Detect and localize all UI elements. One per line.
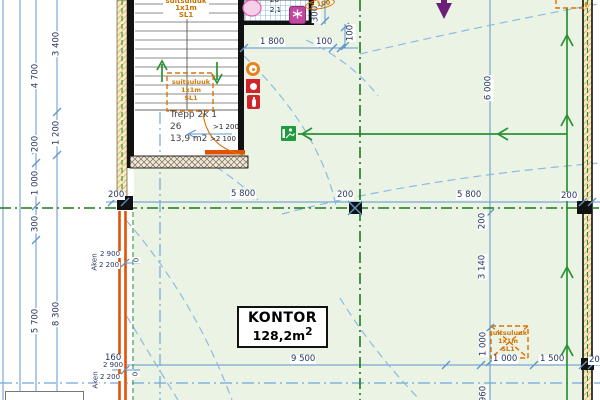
dim-left-300: 300 — [32, 215, 41, 233]
dim-mid-5800-left: 5 800 — [230, 190, 256, 199]
window-bottom-width: 2 900 — [102, 362, 124, 369]
door-clear-width: >1 200 — [212, 124, 240, 131]
wc-symbol-glyph — [290, 7, 305, 22]
dim-right-200: 200 — [479, 212, 488, 230]
sink-icon — [243, 0, 261, 16]
dim-mid-200-right: 200 — [560, 192, 578, 201]
dim-right-960: 960 — [480, 385, 489, 400]
window-mid-sill: 0 — [133, 257, 140, 263]
exit-sign-icon — [281, 126, 296, 141]
room-name: KONTOR — [248, 310, 317, 326]
dim-right-6000: 6 000 — [485, 75, 494, 101]
stairwell-title: Trepp 2k 1 — [169, 111, 218, 120]
room-area-sup: 2 — [305, 326, 312, 338]
dim-bottom-200: 200 — [588, 356, 600, 365]
smoke-hatch-right-line1: suitsuluuk — [488, 330, 528, 337]
room-area: 128,2m2 — [248, 326, 317, 343]
dim-right-3140: 3 140 — [479, 254, 488, 280]
dim-mid-200-center: 200 — [336, 191, 354, 200]
window-mid-height: 2 200 — [98, 262, 120, 269]
smoke-hatch-stair-line1: suitsuluuk — [169, 79, 213, 86]
dim-left-8300: 8 300 — [53, 301, 62, 327]
fire-extinguisher-icon — [247, 95, 260, 109]
fire-extinguisher-glyph — [252, 99, 256, 107]
door-clear-height: >2 100 — [209, 136, 237, 143]
fire-alarm-glyph — [250, 83, 257, 90]
fire-hose-reel-icon — [246, 62, 260, 76]
room-area-value: 128,2m — [253, 328, 306, 343]
wc-room-area: 2,1 — [269, 7, 282, 14]
fire-hose-reel-glyph — [249, 65, 257, 73]
room-label-box: KONTOR 128,2m2 — [237, 306, 328, 348]
dim-left-200: 200 — [32, 135, 41, 153]
smoke-hatch-stair-line3: SL1 — [169, 95, 213, 102]
dim-bottom-9500: 9 500 — [290, 355, 316, 364]
dim-left-3400: 3 400 — [53, 31, 62, 57]
dim-left-5700: 5 700 — [32, 308, 41, 334]
dim-top-1800: 1 800 — [259, 38, 285, 47]
smoke-hatch-right-line2: 1x1m — [488, 338, 528, 345]
wc-symbol-icon — [289, 6, 306, 24]
smoke-hatch-right-line3: SL1 — [488, 346, 528, 353]
dim-mid-200-left: 200 — [107, 191, 125, 200]
fire-alarm-button-icon — [246, 79, 260, 93]
smoke-hatch-stair-line2: 1x1m — [169, 87, 213, 94]
dim-top-100: 100 — [315, 38, 333, 47]
exit-running-man-glyph — [281, 126, 296, 141]
dim-left-4700: 4 700 — [32, 63, 41, 89]
smoke-hatch-top-line3: SL1 — [163, 12, 209, 19]
dim-top-100-side: 100 — [347, 24, 356, 42]
wc-room-number: 26 — [269, 0, 280, 4]
window-bottom-sill: 0 — [132, 371, 139, 377]
floor-plan: 4 700 3 400 1 200 200 1 000 300 5 700 8 … — [0, 0, 600, 400]
dim-bottom-1000: 1 000 — [492, 355, 518, 364]
title-block — [5, 391, 84, 400]
stairwell-area: 13,9 m2 — [169, 135, 208, 144]
dim-bottom-1500: 1 500 — [539, 355, 565, 364]
dim-left-1200: 1 200 — [53, 120, 62, 146]
stairwell-number: 26 — [169, 123, 182, 132]
dim-left-1000: 1 000 — [32, 170, 41, 196]
window-bottom-height: 2 200 — [99, 374, 121, 381]
window-mid-width: 2 900 — [99, 251, 121, 258]
dim-mid-5800-right: 5 800 — [456, 191, 482, 200]
